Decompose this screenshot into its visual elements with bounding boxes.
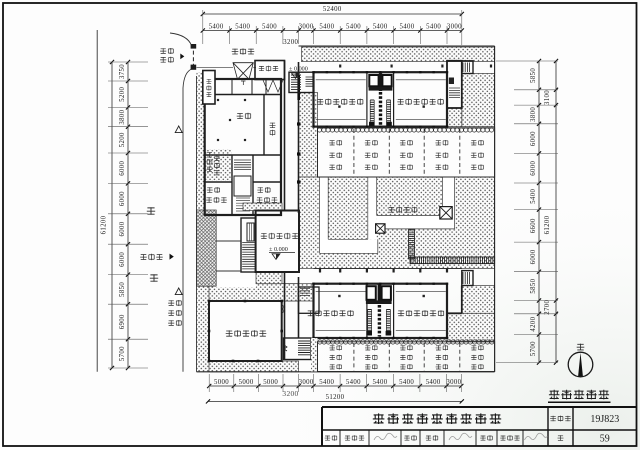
- svg-text:3000: 3000: [446, 379, 461, 386]
- svg-text:5850: 5850: [119, 282, 126, 297]
- svg-text:19J823: 19J823: [590, 414, 619, 425]
- svg-text:5400: 5400: [235, 23, 250, 30]
- svg-text:3800: 3800: [119, 109, 126, 124]
- svg-text:5400: 5400: [530, 189, 537, 204]
- svg-text:5000: 5000: [263, 379, 278, 386]
- svg-text:61200: 61200: [101, 215, 108, 234]
- svg-text:5000: 5000: [214, 379, 229, 386]
- svg-text:5200: 5200: [119, 132, 126, 147]
- svg-text:5850: 5850: [530, 68, 537, 83]
- svg-text:5400: 5400: [346, 23, 361, 30]
- svg-text:5400: 5400: [373, 23, 388, 30]
- svg-text:6900: 6900: [119, 314, 126, 329]
- svg-text:6000: 6000: [119, 221, 126, 236]
- svg-text:6000: 6000: [119, 252, 126, 267]
- svg-text:5400: 5400: [209, 23, 224, 30]
- svg-text:3100: 3100: [544, 90, 551, 105]
- svg-text:5400: 5400: [426, 379, 441, 386]
- svg-text:51200: 51200: [326, 394, 345, 401]
- svg-text:5400: 5400: [319, 23, 334, 30]
- svg-text:5400: 5400: [346, 379, 361, 386]
- svg-text:3000: 3000: [299, 379, 314, 386]
- svg-text:5400: 5400: [399, 379, 414, 386]
- svg-text:6000: 6000: [530, 160, 537, 175]
- svg-text:61200: 61200: [544, 215, 551, 234]
- svg-text:5700: 5700: [119, 346, 126, 361]
- svg-text:6000: 6000: [119, 191, 126, 206]
- svg-text:4200: 4200: [530, 316, 537, 331]
- svg-text:5400: 5400: [319, 379, 334, 386]
- svg-text:6000: 6000: [119, 160, 126, 175]
- svg-text:5000: 5000: [239, 379, 254, 386]
- svg-text:5400: 5400: [262, 23, 277, 30]
- svg-text:52400: 52400: [323, 6, 342, 13]
- svg-text:± 0.000: ± 0.000: [269, 246, 288, 253]
- svg-text:6000: 6000: [530, 249, 537, 264]
- svg-text:5850: 5850: [530, 278, 537, 293]
- svg-text:5400: 5400: [373, 379, 388, 386]
- svg-text:± 0.000: ± 0.000: [289, 65, 308, 72]
- svg-text:3750: 3750: [119, 64, 126, 79]
- svg-text:59: 59: [600, 434, 610, 445]
- svg-text:6000: 6000: [530, 131, 537, 146]
- svg-text:5200: 5200: [119, 86, 126, 101]
- svg-text:3200: 3200: [282, 389, 298, 398]
- svg-text:5400: 5400: [400, 23, 415, 30]
- svg-text:3800: 3800: [530, 107, 537, 122]
- svg-text:5400: 5400: [426, 23, 441, 30]
- svg-text:5700: 5700: [530, 341, 537, 356]
- svg-text:3200: 3200: [283, 39, 298, 46]
- svg-text:2700: 2700: [544, 299, 551, 314]
- svg-text:6600: 6600: [530, 218, 537, 233]
- svg-text:3000: 3000: [447, 23, 462, 30]
- svg-text:3000: 3000: [299, 23, 314, 30]
